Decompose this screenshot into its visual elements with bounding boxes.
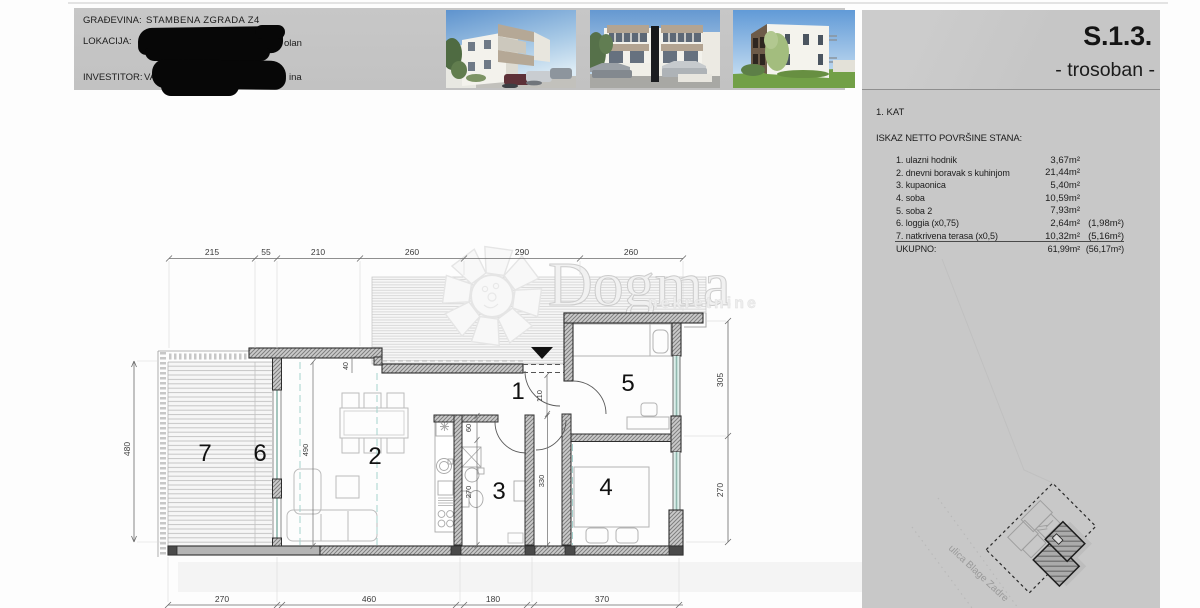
svg-text:215: 215 [205, 247, 219, 257]
svg-text:260: 260 [624, 247, 638, 257]
svg-text:7: 7 [198, 440, 211, 467]
svg-text:110: 110 [535, 390, 544, 402]
svg-text:2: 2 [368, 443, 381, 470]
svg-text:180: 180 [486, 594, 500, 604]
svg-text:40: 40 [343, 362, 350, 370]
svg-text:330: 330 [537, 475, 546, 488]
svg-text:370: 370 [595, 594, 609, 604]
svg-text:490: 490 [301, 444, 310, 457]
svg-text:480: 480 [122, 442, 132, 456]
svg-text:260: 260 [405, 247, 419, 257]
svg-text:210: 210 [311, 247, 325, 257]
svg-text:6: 6 [253, 440, 266, 467]
svg-text:270: 270 [715, 483, 725, 497]
svg-text:5: 5 [621, 370, 634, 397]
svg-text:1: 1 [511, 378, 524, 405]
svg-text:290: 290 [515, 247, 529, 257]
svg-text:270: 270 [464, 486, 473, 499]
svg-text:nekretnine: nekretnine [648, 295, 759, 312]
svg-text:60: 60 [464, 424, 473, 432]
svg-text:460: 460 [362, 594, 376, 604]
svg-text:ulica Blage Zadre: ulica Blage Zadre [946, 543, 1011, 604]
svg-text:3: 3 [492, 478, 505, 505]
svg-text:270: 270 [215, 594, 229, 604]
svg-text:55: 55 [261, 247, 271, 257]
svg-text:4: 4 [599, 474, 612, 501]
svg-text:305: 305 [715, 373, 725, 387]
